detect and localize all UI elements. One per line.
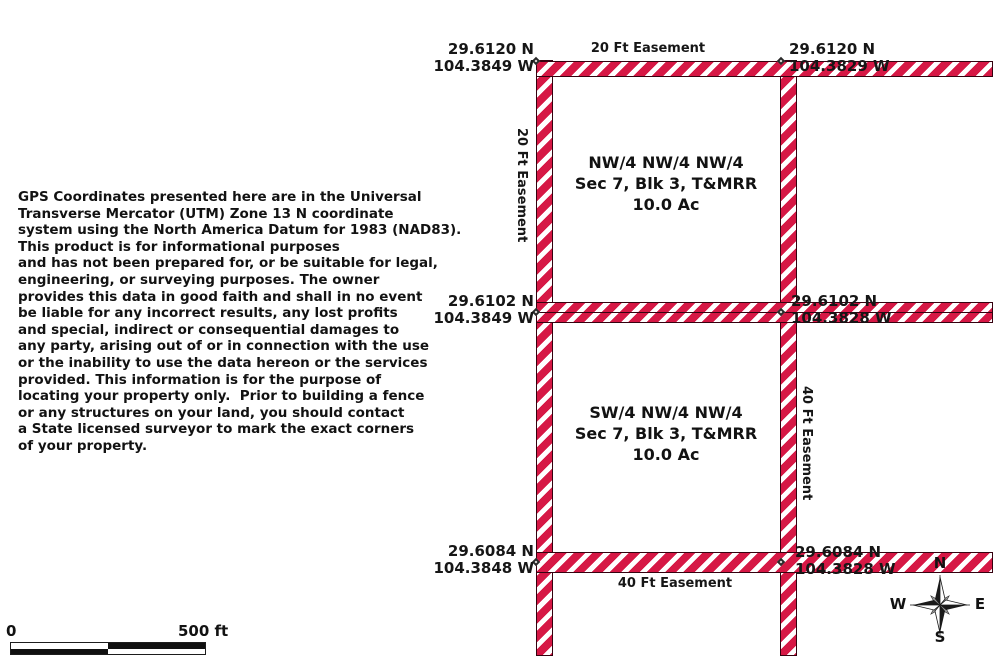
- longitude-value: 104.3828 W: [791, 310, 892, 327]
- longitude-value: 104.3829 W: [789, 58, 890, 75]
- parcel-label-nw4: NW/4 NW/4 NW/4 Sec 7, Blk 3, T&MRR 10.0 …: [548, 152, 784, 215]
- plat-map-page: GPS Coordinates presented here are in th…: [0, 0, 993, 656]
- compass-south-label: S: [930, 628, 950, 646]
- latitude-value: 29.6102 N: [374, 293, 534, 310]
- parcel-label-sw4: SW/4 NW/4 NW/4 Sec 7, Blk 3, T&MRR 10.0 …: [548, 402, 784, 465]
- easement-label-east: 40 Ft Easement: [799, 386, 814, 500]
- easement-band-middle: [536, 302, 993, 323]
- scale-end-label: 500 ft: [178, 622, 228, 640]
- latitude-value: 29.6120 N: [374, 41, 534, 58]
- scale-start-label: 0: [6, 622, 16, 640]
- parcel-quarter: NW/4 NW/4 NW/4: [548, 152, 784, 173]
- longitude-value: 104.3849 W: [374, 58, 534, 75]
- latitude-value: 29.6084 N: [374, 543, 534, 560]
- parcel-section: Sec 7, Blk 3, T&MRR: [548, 423, 784, 444]
- scale-bar: [10, 642, 206, 655]
- scale-segment: [108, 649, 205, 655]
- latitude-value: 29.6084 N: [795, 544, 896, 561]
- parcel-acreage: 10.0 Ac: [548, 194, 784, 215]
- longitude-value: 104.3848 W: [374, 560, 534, 577]
- compass-west-label: W: [888, 595, 908, 613]
- longitude-value: 104.3849 W: [374, 310, 534, 327]
- easement-band-north: [536, 61, 993, 77]
- easement-band-south: [536, 552, 993, 573]
- coords-top-right: 29.6120 N 104.3829 W: [789, 41, 890, 75]
- easement-label-north: 20 Ft Easement: [558, 41, 738, 56]
- coords-bottom-left: 29.6084 N 104.3848 W: [374, 543, 534, 577]
- scale-bar-bottom-row: [11, 649, 205, 655]
- coords-mid-right: 29.6102 N 104.3828 W: [791, 293, 892, 327]
- coords-mid-left: 29.6102 N 104.3849 W: [374, 293, 534, 327]
- section-line: [537, 312, 992, 313]
- easement-label-south: 40 Ft Easement: [585, 576, 765, 591]
- compass-east-label: E: [970, 595, 990, 613]
- coords-top-left: 29.6120 N 104.3849 W: [374, 41, 534, 75]
- parcel-quarter: SW/4 NW/4 NW/4: [548, 402, 784, 423]
- latitude-value: 29.6120 N: [789, 41, 890, 58]
- easement-label-west: 20 Ft Easement: [514, 128, 529, 242]
- scale-segment: [11, 649, 108, 655]
- longitude-value: 104.3828 W: [795, 561, 896, 578]
- parcel-section: Sec 7, Blk 3, T&MRR: [548, 173, 784, 194]
- compass-north-label: N: [930, 554, 950, 572]
- latitude-value: 29.6102 N: [791, 293, 892, 310]
- coords-bottom-right: 29.6084 N 104.3828 W: [795, 544, 896, 578]
- parcel-acreage: 10.0 Ac: [548, 444, 784, 465]
